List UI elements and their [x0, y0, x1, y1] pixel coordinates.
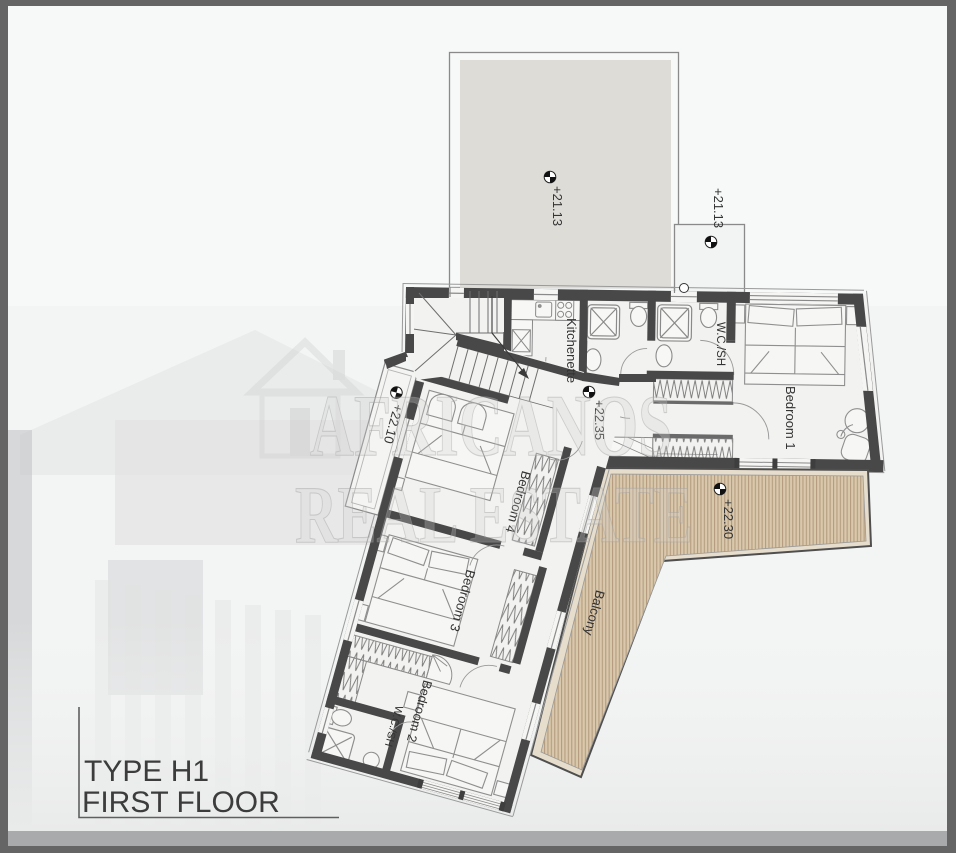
svg-text:Bedroom 1: Bedroom 1 [783, 386, 798, 450]
svg-text:REAL ESTATE: REAL ESTATE [295, 469, 693, 560]
svg-text:+21.13: +21.13 [711, 188, 726, 228]
svg-text:AFRICANOS: AFRICANOS [310, 378, 672, 475]
svg-text:FIRST FLOOR: FIRST FLOOR [82, 786, 280, 819]
svg-text:TYPE H1: TYPE H1 [84, 755, 209, 788]
svg-text:+22.30: +22.30 [721, 499, 736, 539]
svg-text:+21.13: +21.13 [550, 186, 565, 226]
svg-text:W.C./SH: W.C./SH [714, 322, 726, 366]
svg-text:Kitchenette: Kitchenette [564, 318, 579, 383]
